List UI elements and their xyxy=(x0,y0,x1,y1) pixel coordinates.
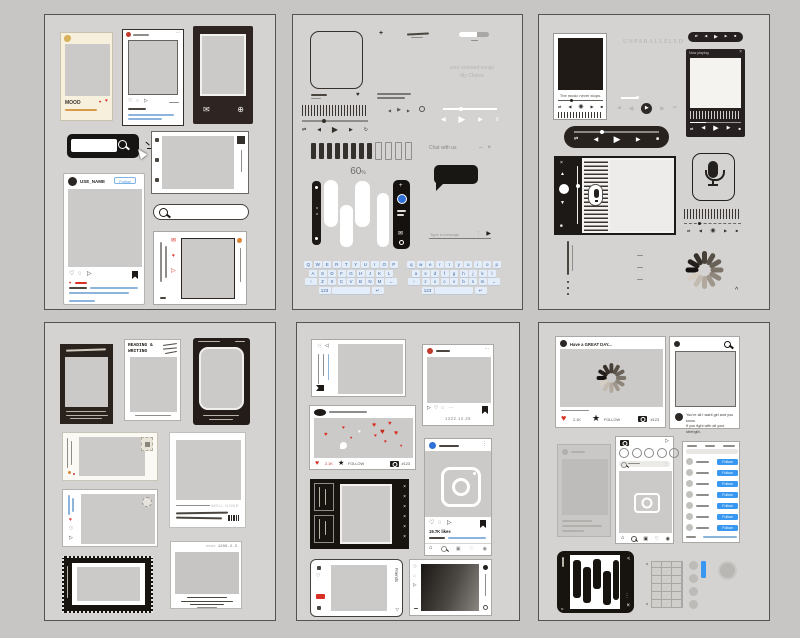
sticker-sheet-1: MOOD ♥ ♥ ··· ♡ ◌ ▷ ✉ ⊕ xyxy=(44,14,276,310)
barcode xyxy=(228,515,239,521)
player-header: Now playing xyxy=(689,51,709,55)
follower-row: Follow xyxy=(686,479,738,489)
caption-line xyxy=(203,415,239,416)
comment-icon[interactable]: ◌ xyxy=(78,271,82,277)
vertical-text-line xyxy=(68,495,70,515)
record-button[interactable]: ▼ xyxy=(559,184,569,194)
circle-mark xyxy=(483,605,488,610)
header-line xyxy=(571,451,585,453)
progress-bar[interactable] xyxy=(558,100,603,101)
follow-button[interactable]: Follow xyxy=(717,492,738,498)
search-field[interactable] xyxy=(686,449,738,454)
bottom-nav: ⌂ ▣ ♡ ◉ xyxy=(429,546,487,552)
send-icon[interactable]: ▷ xyxy=(665,439,669,444)
ghost-line-1: your unheard songs xyxy=(441,65,503,71)
chat-bubble-dark xyxy=(613,560,619,600)
more-icon: ··· xyxy=(449,406,453,410)
more-icon[interactable]: ⋮ xyxy=(482,442,487,447)
loading-spinner xyxy=(593,360,629,396)
username-line xyxy=(439,445,459,447)
home-icon[interactable]: ⌂ xyxy=(429,546,432,552)
footer-link-line[interactable] xyxy=(703,536,737,538)
bookmark-icon[interactable] xyxy=(132,271,138,279)
volume-thumb[interactable] xyxy=(576,184,580,188)
profile-icon[interactable]: ◉ xyxy=(666,537,670,542)
instagram-post-frame: USE_NAME Follow ♡ ◌ ▷ ♥ xyxy=(63,173,145,305)
song-title: The music never stops. xyxy=(554,93,607,98)
side-mark xyxy=(414,608,418,610)
stamp-frame xyxy=(62,432,158,481)
chat-bubble xyxy=(324,180,338,227)
caption-line1: You're all I want girl and you know. xyxy=(686,413,738,424)
dots-mark xyxy=(160,297,166,299)
follow-pill-vertical[interactable] xyxy=(701,561,706,578)
flower-icon xyxy=(64,35,71,42)
flower-icon xyxy=(237,238,242,243)
shuffle-icon[interactable]: ⇄ xyxy=(690,127,693,131)
polaroid-caption: MOOD xyxy=(65,100,81,106)
name-line xyxy=(696,472,709,474)
liked-heart-icon: ♥ xyxy=(69,281,71,285)
chat-title: Chat with us xyxy=(429,145,457,151)
comment-icon[interactable]: ◌ xyxy=(136,99,139,104)
up-icon[interactable]: ▲ xyxy=(560,172,565,177)
vertical-caption-line xyxy=(318,354,319,384)
message-input[interactable]: Type a message ⋮ ▶ xyxy=(429,229,491,239)
heart-icon: ♥ xyxy=(384,440,387,445)
search-icon[interactable] xyxy=(631,536,637,542)
cursor-icon xyxy=(135,147,147,160)
camera-icon[interactable] xyxy=(390,461,399,467)
side-mark xyxy=(155,138,159,142)
hashtag-line xyxy=(69,292,129,294)
name-line xyxy=(696,527,709,529)
ghost-controls: ◀ ◀ ▶ ▶ ⇄ xyxy=(617,103,677,114)
scribble-line xyxy=(165,351,177,354)
follow-star-icon[interactable]: ★ xyxy=(338,460,344,467)
player-controls: ⇄ ◀ ▶ ▶ ↻ xyxy=(302,126,368,134)
share-icon[interactable]: ▷ xyxy=(427,406,431,411)
follow-button[interactable]: Follow xyxy=(717,481,738,487)
search-row[interactable]: ⋮ xyxy=(619,461,670,467)
spreadsheet-grid xyxy=(651,561,683,608)
heart-icon: ♥ xyxy=(372,422,376,429)
story-screen-frame: ▷ ⋮ ⌂ ▣ ♡ ◉ xyxy=(615,436,674,544)
code-note: <<<< 1208.2.3 xyxy=(206,545,237,549)
battery-percent: 60% xyxy=(333,161,383,179)
photo-area xyxy=(200,34,246,96)
photo-area xyxy=(175,552,239,594)
photo-area xyxy=(425,451,491,517)
phone-icon[interactable]: ✉ xyxy=(398,231,403,237)
side-icon-mark xyxy=(317,606,321,610)
search-icon[interactable] xyxy=(159,208,168,217)
share-icon: ▷ xyxy=(69,536,73,541)
prev-icon[interactable]: ◀ xyxy=(701,126,705,131)
volume-slider[interactable] xyxy=(459,32,489,37)
orange-dot xyxy=(68,471,71,474)
share-icon: ▷ xyxy=(413,583,416,588)
close-icon[interactable]: × xyxy=(739,50,742,55)
prev-icon[interactable]: ◀ xyxy=(388,109,391,113)
play-icon[interactable]: ▶ xyxy=(714,35,718,40)
dots-line xyxy=(169,102,179,103)
meta-line xyxy=(561,410,589,411)
photo-area xyxy=(68,189,142,267)
handwriting-line xyxy=(176,505,210,506)
next-icon[interactable]: ▶ xyxy=(727,126,731,131)
landscape-frame xyxy=(151,131,249,194)
white-heart-icon: ♥ xyxy=(358,430,361,435)
shuffle-icon[interactable]: ⇄ xyxy=(574,137,578,142)
name-line xyxy=(696,494,709,496)
heart-icon: ♥ xyxy=(105,99,108,104)
vertical-script-line xyxy=(572,245,573,271)
followers-list-frame: Follow Follow Follow Follow Follow xyxy=(682,441,740,543)
next-icon[interactable]: ▶ xyxy=(724,229,727,233)
tiny-mark xyxy=(637,279,643,280)
plus-icon[interactable]: + xyxy=(399,183,403,189)
down-outline-icon: ▽ xyxy=(396,608,399,613)
camera-icon[interactable] xyxy=(638,416,647,422)
shuffle-icon[interactable]: ⇄ xyxy=(558,105,561,109)
shuffle-icon[interactable]: ⇄ xyxy=(673,106,677,111)
share-icon[interactable]: ▷ xyxy=(87,271,92,277)
live-hearts-frame: ♥ ♥ ♥ ♥ ♥ ♥ ♥ ♥ ♥ ♥ ♥ ♥ 2.1K ★ FOLLOW #1… xyxy=(309,405,416,470)
share-icon[interactable]: ▷ xyxy=(144,99,148,104)
reels-icon[interactable]: ▣ xyxy=(643,537,648,542)
search-input[interactable] xyxy=(71,139,117,152)
typed-line xyxy=(187,597,227,598)
prev-icon[interactable]: ◀ xyxy=(441,117,446,123)
next-icon[interactable]: ▶ xyxy=(349,128,353,133)
play-icon[interactable]: ▶ xyxy=(614,135,621,144)
caption-line xyxy=(562,525,602,527)
follower-row: Follow xyxy=(686,523,738,533)
avatar xyxy=(689,561,698,570)
vertical-text-line xyxy=(485,574,486,596)
follow-button[interactable]: Follow xyxy=(717,459,738,465)
progress-thumb[interactable] xyxy=(459,107,463,111)
profile-icon[interactable]: ◉ xyxy=(483,547,487,552)
likes-count: 19.7K likes xyxy=(429,529,451,534)
header-line xyxy=(198,341,220,342)
username-line xyxy=(436,350,450,352)
play-icon[interactable]: ◉ xyxy=(578,104,583,110)
play-icon[interactable]: ▶ xyxy=(458,115,465,124)
dot-mark xyxy=(567,293,569,295)
album-art xyxy=(690,58,741,108)
sticker-sheet-5: ♡ ▽ ··· ▷ ♡ ◌ ··· 1222.12.25 ♥ xyxy=(296,322,520,621)
prev-icon[interactable]: ◀ xyxy=(317,128,321,133)
tiny-mark xyxy=(637,255,643,256)
like-icon[interactable]: ♡ xyxy=(128,99,132,104)
loading-spinner xyxy=(677,243,731,297)
home-icon[interactable]: ⌂ xyxy=(621,536,624,542)
close-icon[interactable]: × xyxy=(560,161,563,166)
like-icon[interactable]: ♡ xyxy=(69,271,74,277)
next-icon[interactable]: ▶ xyxy=(636,137,641,143)
play-icon[interactable]: ▶ xyxy=(332,126,338,134)
red-dot xyxy=(73,473,75,475)
scribble-x: × xyxy=(403,535,406,540)
heart-outline-icon: ♡ xyxy=(316,574,320,579)
handwriting-line xyxy=(407,32,429,35)
play-button[interactable]: ▶ xyxy=(641,103,652,114)
handwriting-line xyxy=(411,37,423,38)
caption-bold-line xyxy=(69,287,87,289)
dot-mark xyxy=(567,287,569,289)
search-icon xyxy=(621,462,627,468)
back-icon[interactable]: < xyxy=(627,556,630,562)
camera-icon[interactable] xyxy=(620,440,629,446)
tab-line[interactable] xyxy=(687,445,697,447)
caption-line xyxy=(70,418,102,419)
share-icon[interactable]: ▷ xyxy=(447,520,452,526)
tab-line[interactable] xyxy=(705,445,715,447)
more-icon[interactable]: ··· xyxy=(485,347,490,352)
vertical-text-line xyxy=(71,441,72,465)
like-count: 2.1K xyxy=(573,418,581,422)
photo-area xyxy=(181,238,235,299)
comments-link-line[interactable] xyxy=(69,300,95,302)
comment-icon[interactable]: ◌ xyxy=(438,520,442,526)
globe-icon[interactable]: ⊕ xyxy=(237,106,244,114)
attach-icon[interactable]: ⋮ xyxy=(476,232,481,237)
avatar xyxy=(686,524,693,531)
avatar xyxy=(686,502,693,509)
name-line xyxy=(696,516,709,518)
down-icon[interactable]: ▼ xyxy=(560,201,565,206)
like-heart-icon[interactable]: ♥ xyxy=(315,460,319,467)
menu-icon[interactable]: ≡ xyxy=(495,117,499,123)
waveform xyxy=(558,112,603,118)
microphone-box[interactable] xyxy=(692,153,735,201)
envelope-icon: ✉ xyxy=(171,238,176,244)
sticker-sheet-2: ♥ ⇄ ◀ ▶ ▶ ↻ + your unheard songs My Choi… xyxy=(292,14,523,310)
more-icon: ⋮ xyxy=(664,462,668,466)
add-icon[interactable]: + xyxy=(379,30,383,37)
follow-button[interactable]: Follow xyxy=(717,503,738,509)
side-mark xyxy=(155,158,159,162)
search-icon[interactable] xyxy=(118,140,127,149)
close-icon[interactable]: × xyxy=(626,603,630,609)
album-art-outline xyxy=(310,31,363,89)
instagram-profile-frame: ⋮ ♡ ◌ ▷ 19.7K likes ⌂ ▣ ♡ ◉ xyxy=(424,438,492,556)
stop-icon[interactable]: ■ xyxy=(601,105,603,109)
progress-bar-white[interactable] xyxy=(443,108,497,110)
follow-button[interactable]: Follow xyxy=(114,177,136,184)
search-icon[interactable] xyxy=(441,546,447,552)
stamp-circle xyxy=(142,497,152,507)
side-icon-mark xyxy=(317,566,321,570)
like-count: 2.1K xyxy=(325,462,333,466)
shuffle-icon[interactable]: ⇄ xyxy=(687,229,690,233)
likes-icon[interactable]: ♡ xyxy=(469,547,473,552)
next-icon[interactable]: ▶ xyxy=(478,117,483,123)
next-icon[interactable]: ▶ xyxy=(660,106,665,112)
reels-icon[interactable]: ▣ xyxy=(456,547,461,552)
bookmark-icon[interactable] xyxy=(480,520,486,528)
progress-bar[interactable] xyxy=(690,122,741,123)
heart-icon: ♥ xyxy=(342,426,345,431)
scribble-x: × xyxy=(403,515,406,520)
scribble-x: × xyxy=(403,505,406,510)
frame-title-line2: WRITING xyxy=(128,349,153,355)
bookmark-icon[interactable] xyxy=(482,406,488,414)
progress-thumb[interactable] xyxy=(322,119,326,123)
more-icon[interactable]: ⋮ xyxy=(625,594,630,599)
stop-icon[interactable]: ■ xyxy=(734,35,736,39)
photo-area xyxy=(130,357,177,412)
play-icon: ▶ xyxy=(645,106,649,111)
photo-area xyxy=(340,484,392,544)
vertical-caption-line xyxy=(323,354,324,376)
recorder-screen xyxy=(610,160,674,231)
photo-area xyxy=(65,357,108,407)
chat-sidebar-right: + ✉ xyxy=(393,180,410,249)
vertical-script-line xyxy=(567,241,569,275)
play-icon[interactable]: ▶ xyxy=(397,108,401,113)
progress-bar[interactable] xyxy=(302,120,368,122)
tab-line[interactable] xyxy=(723,445,735,447)
photo-area xyxy=(128,40,178,95)
share-icon: ▷ xyxy=(171,268,176,274)
player-controls-white: ◀ ▶ ▶ ≡ xyxy=(441,115,499,124)
minimize-icon[interactable]: – xyxy=(479,145,482,151)
edge-mark xyxy=(562,557,564,567)
camera-label: #123 xyxy=(651,418,659,422)
profile-badge[interactable] xyxy=(397,194,407,204)
stop-icon[interactable]: ■ xyxy=(736,229,738,233)
search-bar-white[interactable] xyxy=(153,204,249,220)
next-icon[interactable]: ▶ xyxy=(407,109,410,113)
next-icon[interactable]: ▶ xyxy=(725,35,728,39)
name-line xyxy=(696,505,709,507)
vertical-text-line xyxy=(165,246,167,278)
repeat-icon[interactable]: ↻ xyxy=(364,128,368,133)
send-icon[interactable]: ▶ xyxy=(486,231,491,237)
search-icon[interactable] xyxy=(724,341,731,348)
side-text-line xyxy=(241,150,243,172)
follower-row: Follow xyxy=(686,501,738,511)
typed-line xyxy=(181,601,233,602)
username-line xyxy=(133,34,149,36)
dotted-line xyxy=(684,223,741,224)
avatar xyxy=(675,413,683,421)
more-icon[interactable]: ··· xyxy=(176,31,180,35)
comment-icon[interactable]: ◌ xyxy=(441,406,444,411)
stop-icon[interactable]: ■ xyxy=(656,137,659,142)
caption-line xyxy=(66,415,108,416)
lyric-line xyxy=(377,93,411,95)
photo-mat xyxy=(72,563,145,605)
keyboard-uppercase[interactable]: QWERTYUIOPASDFGHJKL↑ZXCVBNM←123↵ xyxy=(307,261,395,294)
heart-outline-icon[interactable]: ♡ xyxy=(434,406,438,411)
caption-line xyxy=(209,419,233,420)
stop-icon[interactable]: ■ xyxy=(560,224,563,229)
follow-button[interactable]: Follow xyxy=(717,470,738,476)
post-header: Have a GREAT DAY... xyxy=(570,342,612,347)
follow-button[interactable]: Follow xyxy=(717,514,738,520)
polaroid-frame: WELL DONE xyxy=(169,432,246,528)
repeat-circle-icon[interactable] xyxy=(419,106,425,112)
like-heart-icon[interactable]: ♥ xyxy=(561,414,566,423)
speech-bubble-black xyxy=(434,165,478,184)
prev-icon[interactable]: ◀ xyxy=(594,137,599,143)
chat-bubble-dark xyxy=(593,559,601,589)
slider-caption-line xyxy=(471,40,478,41)
typed-line xyxy=(197,607,217,608)
quote-post-frame: You're all I want girl and you know. If … xyxy=(669,336,740,429)
recorder-sidebar: × ▲ ▼ ▼ ■ xyxy=(556,158,582,233)
photo-area-gradient xyxy=(421,564,479,611)
instagram-logo-icon xyxy=(441,467,481,507)
prev-icon[interactable]: ◀ xyxy=(568,105,571,109)
prev-icon[interactable]: ◀ xyxy=(699,229,702,233)
header-line xyxy=(329,411,367,413)
follow-star-icon[interactable]: ★ xyxy=(592,414,600,423)
keyboard-lowercase[interactable]: qwertyuiopasdfghjkl↑zxcvbnm←123↵ xyxy=(410,261,498,294)
battery-unit: % xyxy=(361,170,365,176)
stories-row[interactable] xyxy=(619,448,679,458)
row-number-mark xyxy=(646,563,648,565)
avatar xyxy=(560,340,567,347)
heart-icon: ♥ xyxy=(374,434,377,439)
follow-button[interactable]: Follow xyxy=(717,525,738,531)
search-bar-black[interactable] xyxy=(67,134,139,158)
voice-recorder-panel: × ▲ ▼ ▼ ■ xyxy=(554,156,676,235)
player-controls: ⇄ ◀ ◉ ▶ ■ xyxy=(687,228,738,234)
avatar-dot xyxy=(483,565,488,570)
play-icon[interactable]: ▶ xyxy=(713,125,718,132)
scribble-x: × xyxy=(403,485,406,490)
ghost-line-2: My Choice xyxy=(441,73,503,79)
stop-icon[interactable]: ■ xyxy=(739,127,741,131)
envelope-icon[interactable]: ✉ xyxy=(203,106,210,114)
avatar xyxy=(689,600,698,609)
stamp-note: WELL DONE xyxy=(211,503,239,508)
caption-line xyxy=(562,520,592,522)
progress-bar[interactable] xyxy=(574,131,659,133)
prev-icon[interactable]: ◀ xyxy=(629,106,634,112)
likes-icon[interactable]: ♡ xyxy=(655,537,659,542)
follower-row: Follow xyxy=(686,468,738,478)
script-title-line xyxy=(66,348,106,351)
scribble-x: × xyxy=(403,525,406,530)
mic-pill[interactable] xyxy=(588,184,603,206)
waveform xyxy=(302,105,368,116)
volume-rail[interactable] xyxy=(577,166,579,224)
footer-line xyxy=(686,536,696,538)
prev-icon[interactable]: ◀ xyxy=(704,35,707,39)
bottom-nav: ⌂ ▣ ♡ ◉ xyxy=(621,536,670,542)
heart-icon: ♥ xyxy=(350,436,352,440)
heart-icon: ♥ xyxy=(99,100,101,104)
next-icon[interactable]: ▶ xyxy=(591,105,594,109)
close-icon[interactable]: × xyxy=(487,145,491,151)
chat-sidebar-left xyxy=(312,181,321,245)
battery-value: 60 xyxy=(350,166,361,177)
prev-icon[interactable]: ◀ xyxy=(617,106,621,111)
heart-icon[interactable]: ♥ xyxy=(356,92,360,98)
like-icon[interactable]: ♡ xyxy=(429,520,434,526)
shuffle-icon[interactable]: ⇄ xyxy=(302,128,306,133)
play-icon[interactable]: ◉ xyxy=(710,228,715,234)
pill-player: ⇄ ◀ ▶ ▶ ■ xyxy=(564,126,669,148)
faded-post-frame xyxy=(557,444,611,537)
shuffle-icon[interactable]: ⇄ xyxy=(695,35,698,39)
